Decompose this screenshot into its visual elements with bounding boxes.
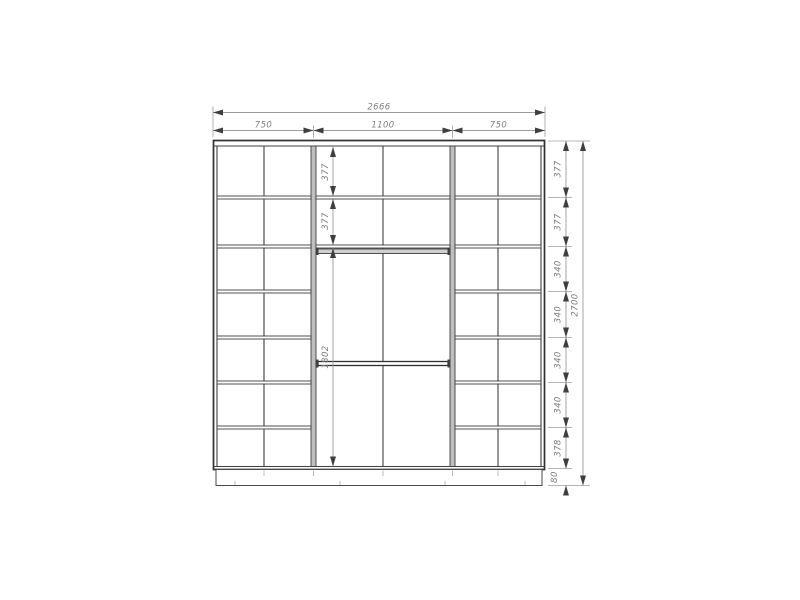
dim-label-row-2: 377 — [554, 213, 564, 231]
top-dimensions: 2666 750 1100 750 — [213, 103, 545, 139]
right-dimension-chain: 377 377 340 340 340 340 378 80 — [548, 141, 590, 493]
plinth — [216, 470, 542, 486]
dim-label-row-6: 340 — [554, 396, 564, 413]
dim-label-row-5: 340 — [554, 351, 564, 368]
hanging-rod-upper — [316, 248, 451, 256]
dim-label-hanging-height: 1802 — [321, 345, 331, 368]
dim-label-overall-height: 2700 — [571, 293, 581, 316]
dim-label-section-right-width: 750 — [490, 121, 507, 131]
dim-label-row-1: 377 — [554, 160, 564, 178]
dim-label-middle-row-2: 377 — [321, 212, 331, 230]
dim-label-row-4: 340 — [554, 306, 564, 323]
dim-label-row-3: 340 — [554, 260, 564, 277]
dim-label-overall-width: 2666 — [367, 103, 390, 113]
dim-label-row-7: 378 — [554, 439, 564, 457]
drawing-page: 2666 750 1100 750 377 377 340 340 340 34… — [0, 0, 800, 600]
wardrobe-technical-drawing: 2666 750 1100 750 377 377 340 340 340 34… — [0, 0, 800, 600]
dim-label-section-middle-width: 1100 — [371, 121, 394, 131]
right-overall-dimension: 2700 — [571, 141, 584, 486]
dim-label-plinth-height: 80 — [550, 471, 560, 483]
dim-label-section-left-width: 750 — [255, 121, 272, 131]
dim-label-middle-row-1: 377 — [321, 163, 331, 181]
carcass — [214, 141, 545, 470]
